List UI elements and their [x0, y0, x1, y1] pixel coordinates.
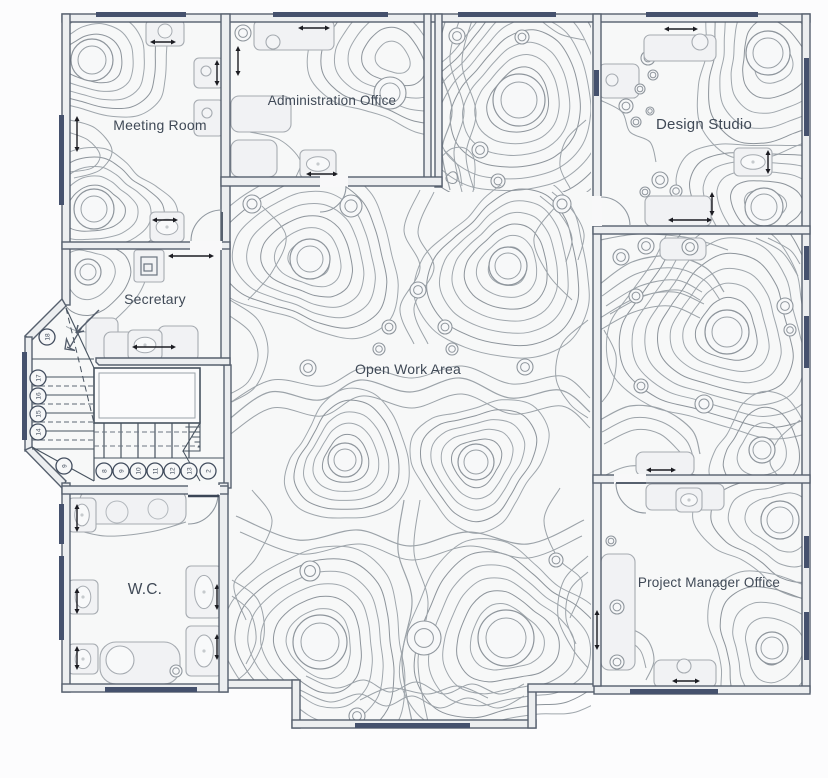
svg-text:12: 12 [169, 467, 176, 475]
svg-text:10: 10 [135, 467, 142, 475]
svg-text:9: 9 [118, 469, 125, 473]
svg-text:Open Work Area: Open Work Area [355, 361, 461, 377]
svg-text:Secretary: Secretary [124, 291, 186, 307]
svg-text:13: 13 [186, 467, 193, 475]
svg-text:15: 15 [35, 410, 42, 418]
svg-text:14: 14 [35, 428, 42, 436]
svg-text:Meeting Room: Meeting Room [113, 117, 206, 133]
svg-text:16: 16 [35, 392, 42, 400]
svg-text:W.C.: W.C. [128, 581, 162, 598]
svg-text:17: 17 [35, 374, 42, 382]
svg-text:Project Manager Office: Project Manager Office [638, 575, 780, 590]
svg-text:2: 2 [205, 469, 212, 473]
svg-text:11: 11 [152, 467, 159, 474]
svg-text:9: 9 [61, 464, 68, 468]
svg-text:Design Studio: Design Studio [656, 116, 752, 133]
svg-text:Administration Office: Administration Office [268, 93, 397, 108]
svg-text:8: 8 [101, 469, 108, 473]
svg-text:18: 18 [44, 333, 51, 341]
